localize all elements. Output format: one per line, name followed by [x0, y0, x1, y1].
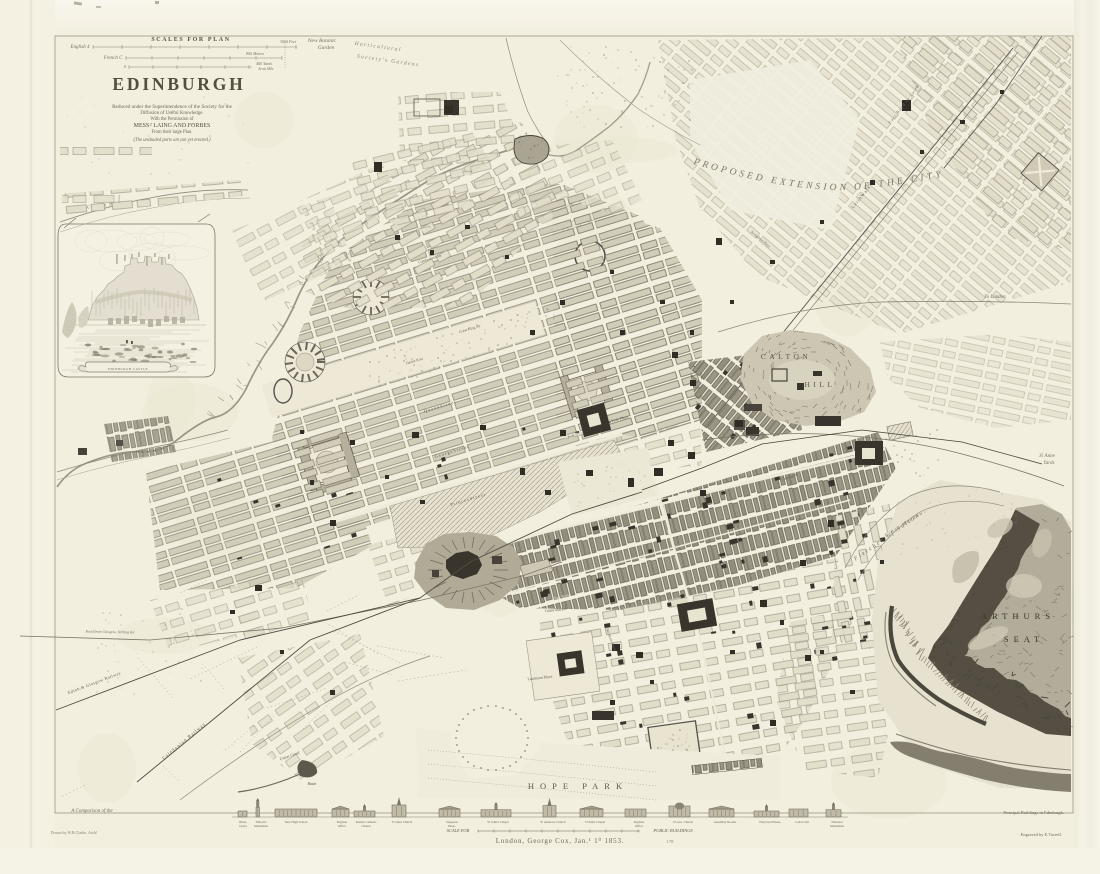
svg-text:HOPE PARK: HOPE PARK [528, 781, 628, 791]
svg-text:MESS ² LAING AND FORBES: MESS ² LAING AND FORBES [134, 123, 211, 129]
svg-text:800 Metres: 800 Metres [246, 51, 264, 56]
svg-text:Reduced under the Superintende: Reduced under the Superintendence of the… [112, 103, 233, 110]
svg-text:Monument: Monument [254, 824, 268, 828]
svg-text:Assembly Rooms: Assembly Rooms [714, 820, 737, 824]
svg-text:Diffusion of Useful Knowledge.: Diffusion of Useful Knowledge. [140, 111, 203, 116]
svg-text:New Botanic: New Botanic [307, 38, 337, 44]
svg-text:vatory: vatory [239, 824, 248, 828]
svg-text:3000 Feet: 3000 Feet [280, 39, 297, 44]
svg-text:Monument: Monument [830, 824, 844, 828]
svg-text:Scots Mile: Scots Mile [258, 67, 273, 71]
svg-text:S! Pauls Chapel: S! Pauls Chapel [585, 820, 605, 824]
svg-text:Calton Jail: Calton Jail [795, 820, 809, 824]
svg-text:S! John's Chapel: S! John's Chapel [487, 820, 508, 824]
svg-text:0: 0 [124, 64, 126, 69]
svg-text:S! Anne: S! Anne [1039, 454, 1055, 459]
svg-text:Chapel: Chapel [361, 824, 370, 828]
svg-text:(The unshaded parts are not ye: (The unshaded parts are not yet erected.… [133, 138, 211, 143]
svg-text:Engraved by E.Turrell.: Engraved by E.Turrell. [1021, 832, 1062, 837]
svg-text:S! Giles Church: S! Giles Church [392, 820, 413, 824]
svg-text:A Comparison of the: A Comparison of the [70, 809, 113, 814]
svg-text:Basin: Basin [308, 782, 317, 786]
svg-text:460 Yards: 460 Yards [256, 61, 272, 66]
svg-text:SEAT: SEAT [1004, 634, 1044, 644]
svg-text:Principal Buildings in Edinbur: Principal Buildings in Edinburgh. [1003, 810, 1064, 815]
svg-text:Holyrood House: Holyrood House [759, 820, 781, 824]
svg-text:HILL: HILL [804, 380, 835, 389]
svg-text:London, George Cox, Jan.¹ 1⁰ 1: London, George Cox, Jan.¹ 1⁰ 1853. [496, 837, 625, 845]
svg-text:French C: French C [103, 56, 124, 61]
svg-text:Garden: Garden [318, 45, 335, 51]
svg-text:ARTHURS: ARTHURS [981, 611, 1055, 621]
svg-text:English 4: English 4 [69, 45, 90, 50]
svg-text:CALTON: CALTON [761, 352, 812, 361]
svg-text:With the Permission of: With the Permission of [150, 117, 194, 122]
svg-text:SCALES FOR PLAN: SCALES FOR PLAN [151, 37, 230, 43]
svg-text:New High School: New High School [285, 820, 308, 824]
svg-text:SCALE FOR: SCALE FOR [447, 828, 470, 833]
svg-text:EDINBURGH: EDINBURGH [112, 74, 245, 94]
svg-text:Office: Office [635, 824, 644, 828]
svg-text:Office: Office [338, 824, 347, 828]
svg-text:S! Andrews Church: S! Andrews Church [540, 820, 566, 824]
svg-text:178: 178 [667, 839, 675, 844]
svg-text:From their large Plan.: From their large Plan. [151, 130, 192, 135]
svg-text:EDINBURGH CASTLE: EDINBURGH CASTLE [108, 367, 148, 371]
svg-text:To London: To London [984, 295, 1006, 300]
svg-text:PUBLIC BUILDINGS: PUBLIC BUILDINGS [652, 828, 693, 833]
svg-text:Yards: Yards [1043, 461, 1054, 466]
svg-text:S! Geo. Church: S! Geo. Church [673, 820, 693, 824]
